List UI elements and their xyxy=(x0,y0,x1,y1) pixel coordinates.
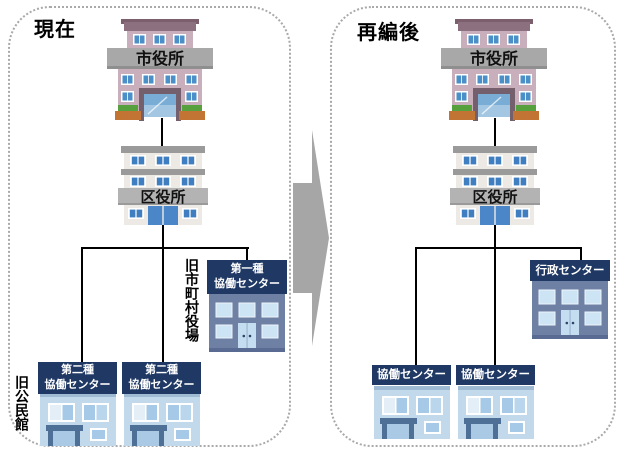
connector-line xyxy=(494,224,496,367)
reorganization-diagram: 現在 再編後 市役所 区役所 第一種 協働センター 第二種 協働センター 第二 xyxy=(0,0,625,455)
label-type2-center-a: 第二種 協働センター xyxy=(38,362,117,394)
label-line1: 第二種 xyxy=(122,363,201,378)
type2-center-building-b xyxy=(124,393,200,446)
panel-title-after: 再編後 xyxy=(357,16,420,45)
city-hall-building: 市役所 xyxy=(441,8,547,121)
label-center-b: 協働センター xyxy=(456,365,535,385)
label-type2-center-b: 第二種 協働センター xyxy=(122,362,201,394)
city-hall-sign: 市役所 xyxy=(470,49,518,68)
transition-arrow-icon xyxy=(293,130,330,346)
type1-center-building xyxy=(209,294,285,352)
label-center-a: 協働センター xyxy=(372,365,451,385)
label-line1: 第一種 xyxy=(207,262,287,277)
connector-line xyxy=(494,118,496,146)
connector-line xyxy=(162,224,164,364)
connector-line xyxy=(415,247,582,249)
ward-office-sign: 区役所 xyxy=(472,188,517,206)
note-former-community-hall: 旧公民館 xyxy=(15,375,29,437)
label-line2: 協働センター xyxy=(38,378,117,393)
connector-line xyxy=(81,247,83,364)
center-building-a xyxy=(374,386,450,439)
label-line1: 行政センター xyxy=(530,261,610,281)
label-line2: 協働センター xyxy=(122,378,201,393)
label-type1-center: 第一種 協働センター xyxy=(207,260,287,294)
admin-center-building xyxy=(532,281,608,339)
label-line1: 協働センター xyxy=(456,365,535,385)
type2-center-building-a xyxy=(40,393,116,446)
label-line1: 協働センター xyxy=(372,365,451,385)
ward-office-building: 区役所 xyxy=(449,145,541,225)
city-hall-building: 市役所 xyxy=(107,8,213,121)
ward-office-building: 区役所 xyxy=(117,145,209,225)
panel-title-current: 現在 xyxy=(34,13,76,42)
label-line2: 協働センター xyxy=(207,277,287,292)
connector-line xyxy=(415,247,417,367)
ward-office-sign: 区役所 xyxy=(140,188,185,206)
label-line1: 第二種 xyxy=(38,363,117,378)
city-hall-sign: 市役所 xyxy=(136,49,184,68)
label-admin-center: 行政センター xyxy=(530,260,610,281)
connector-line xyxy=(81,247,249,249)
connector-line xyxy=(161,118,163,146)
center-building-b xyxy=(458,386,534,439)
note-former-town-hall: 旧市町村役場 xyxy=(185,258,199,352)
